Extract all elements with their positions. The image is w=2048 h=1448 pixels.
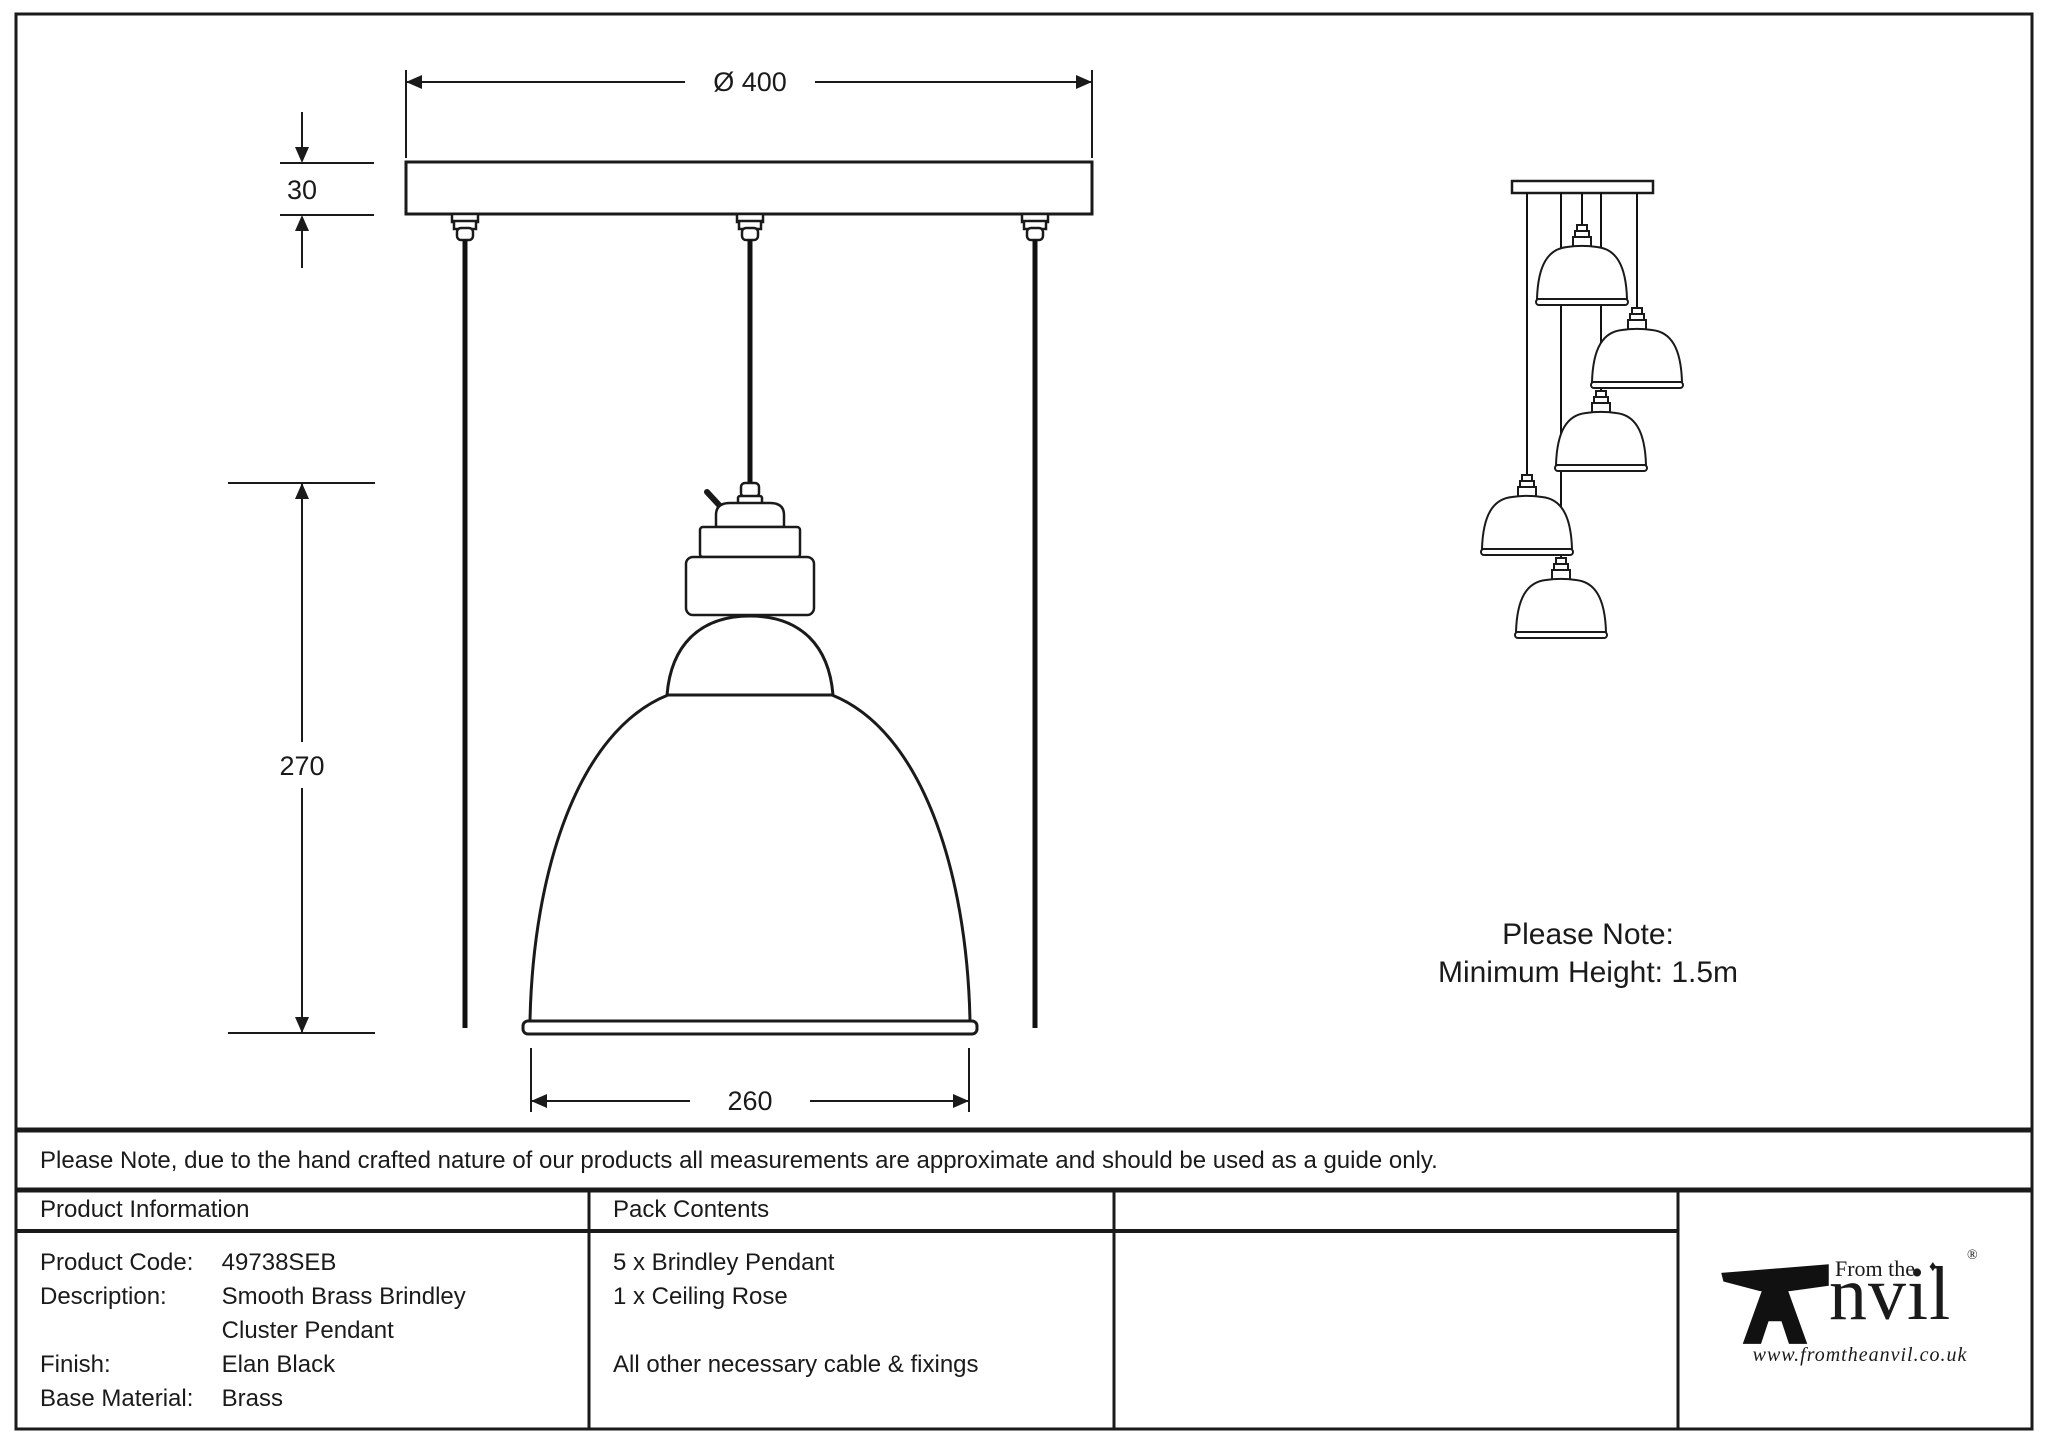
- minimum-height-note-body: Minimum Height: 1.5m: [1438, 956, 1738, 989]
- technical-drawing-canvas: Ø 400 30 270 260: [0, 0, 2048, 1448]
- spec-sheet-page: Ø 400 30 270 260: [0, 0, 2048, 1448]
- shade-shoulder: [667, 616, 833, 695]
- dim-label-rose-thickness: 30: [287, 175, 317, 205]
- cluster-pendant: [1555, 391, 1647, 471]
- switch-lever: [707, 492, 720, 506]
- disclaimer-text: Please Note, due to the hand crafted nat…: [40, 1147, 1438, 1175]
- pack-contents-cell: 5 x Brindley Pendant 1 x Ceiling Rose Al…: [613, 1246, 979, 1382]
- table-row: Cluster Pendant: [40, 1314, 466, 1348]
- logo-website-url: www.fromtheanvil.co.uk: [1715, 1344, 2005, 1367]
- table-row: Finish: Elan Black: [40, 1348, 466, 1382]
- table-row: Description: Smooth Brass Brindley: [40, 1280, 466, 1314]
- field-value: Cluster Pendant: [222, 1317, 394, 1344]
- cluster-pendant: [1536, 225, 1628, 305]
- product-information-header: Product Information: [40, 1196, 249, 1224]
- cluster-pendant: [1515, 558, 1607, 638]
- field-value: Smooth Brass Brindley: [222, 1283, 466, 1310]
- product-information-cell: Product Code: 49738SEB Description: Smoo…: [40, 1246, 466, 1416]
- pack-contents-line: All other necessary cable & fixings: [613, 1348, 979, 1382]
- field-label: Finish:: [40, 1348, 215, 1382]
- shade-dome: [530, 695, 970, 1021]
- cord-grips: [452, 214, 1048, 240]
- brindley-pendant-drawing: [523, 483, 977, 1034]
- cluster-illustration: Please Note: Minimum Height: 1.5m: [1438, 181, 1738, 989]
- field-value: Brass: [222, 1385, 283, 1412]
- table-row: Base Material: Brass: [40, 1382, 466, 1416]
- cluster-pendant: [1591, 308, 1683, 388]
- registered-trademark-icon: ®: [1967, 1248, 1978, 1264]
- dim-label-diameter: Ø 400: [713, 67, 787, 97]
- pack-contents-header: Pack Contents: [613, 1196, 769, 1224]
- field-label: Product Code:: [40, 1246, 215, 1280]
- pack-contents-line: [613, 1314, 979, 1348]
- field-value: 49738SEB: [222, 1249, 337, 1276]
- pack-contents-line: 5 x Brindley Pendant: [613, 1246, 979, 1280]
- field-label: Description:: [40, 1280, 215, 1314]
- shade-rim: [523, 1021, 977, 1034]
- pack-contents-line: 1 x Ceiling Rose: [613, 1280, 979, 1314]
- anvil-icon: [1719, 1260, 1831, 1346]
- minimum-height-note-title: Please Note:: [1502, 918, 1674, 951]
- logo-wordmark: nvil: [1829, 1256, 1951, 1332]
- cluster-pendant: [1481, 475, 1573, 555]
- field-label: Base Material:: [40, 1382, 215, 1416]
- field-value: Elan Black: [222, 1351, 335, 1378]
- table-row: Product Code: 49738SEB: [40, 1246, 466, 1280]
- from-the-anvil-logo: From the ♦ ® nvil www.fromtheanvil.co.uk: [1715, 1248, 2015, 1378]
- dim-label-pendant-height: 270: [279, 751, 324, 781]
- lamp-holder-cap: [716, 503, 784, 527]
- dim-label-shade-diameter: 260: [727, 1086, 772, 1116]
